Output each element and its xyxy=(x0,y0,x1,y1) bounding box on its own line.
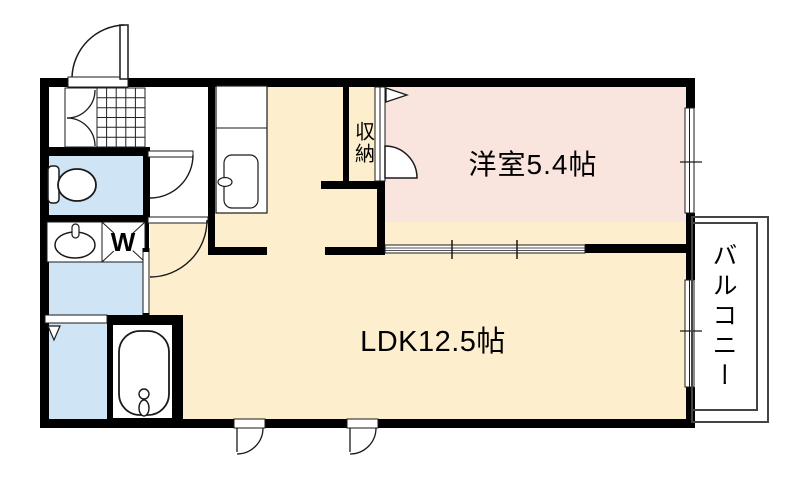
wall-closet-south xyxy=(321,181,385,189)
entrance-door-icon xyxy=(68,25,128,87)
window-bottom-left-icon xyxy=(234,419,265,454)
wall-top xyxy=(40,78,695,87)
genkan-tiles xyxy=(97,88,145,147)
wall-toilet-washroom xyxy=(40,215,150,222)
label-storage: 収納 xyxy=(349,121,378,165)
label-western-room: 洋室5.4帖 xyxy=(469,143,598,183)
washroom-sliding-door-icon xyxy=(143,248,150,317)
window-bottom-right-icon xyxy=(347,419,378,454)
washing-machine-icon: W xyxy=(102,222,145,262)
washbasin-icon xyxy=(47,222,102,262)
bathroom-floor xyxy=(49,322,111,419)
wall-kitchen-west xyxy=(208,78,215,250)
hall-door-upper-icon xyxy=(148,151,193,198)
shoe-cabinet-icon xyxy=(65,88,97,147)
washer-label: W xyxy=(111,227,136,257)
wall-toilet-east xyxy=(143,147,150,222)
wall-western-room-west xyxy=(377,181,385,250)
bathtub-icon xyxy=(119,331,169,416)
kitchen-counter-icon xyxy=(216,86,267,213)
wall-partition-east xyxy=(585,244,695,253)
toilet-icon xyxy=(48,166,96,203)
label-ldk: LDK12.5帖 xyxy=(360,318,506,360)
wall-right-1 xyxy=(686,78,695,108)
wall-kitchen-south-1 xyxy=(208,247,267,255)
wall-kitchen-south-2 xyxy=(325,247,385,255)
wall-genkan-toilet xyxy=(40,147,150,156)
floorplan-drawing: W xyxy=(0,0,800,482)
floorplan-canvas: W xyxy=(0,0,800,482)
label-balcony: バルコニー xyxy=(705,242,741,392)
